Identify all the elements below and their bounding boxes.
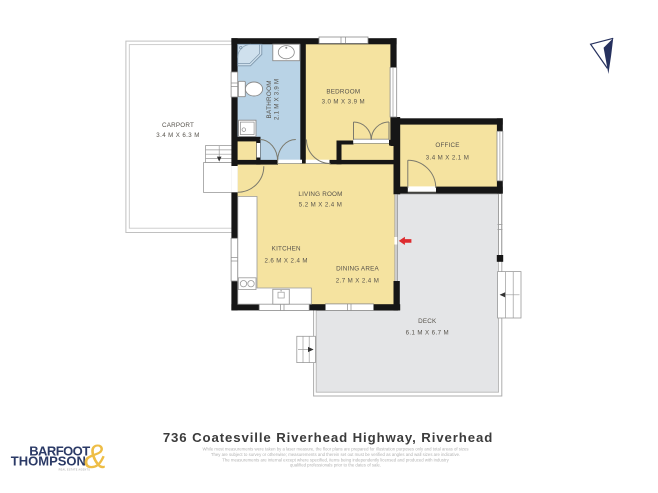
svg-text:5.2 M X 2.4 M: 5.2 M X 2.4 M bbox=[299, 201, 342, 208]
svg-text:LIVING ROOM: LIVING ROOM bbox=[298, 191, 342, 198]
svg-text:They are subject to survey or: They are subject to survey or otherwise;… bbox=[211, 452, 460, 457]
svg-text:736 Coatesville Riverhead High: 736 Coatesville Riverhead Highway, River… bbox=[163, 430, 493, 445]
svg-text:THOMPSON: THOMPSON bbox=[11, 453, 86, 468]
svg-text:DINING AREA: DINING AREA bbox=[336, 265, 379, 272]
svg-text:The measurements are internal: The measurements are internal except whe… bbox=[222, 457, 449, 462]
svg-text:DECK: DECK bbox=[418, 318, 437, 325]
svg-text:2.7 M X 2.4 M: 2.7 M X 2.4 M bbox=[336, 277, 379, 284]
svg-text:CARPORT: CARPORT bbox=[162, 122, 194, 129]
svg-text:3.0 M X 3.9 M: 3.0 M X 3.9 M bbox=[322, 98, 365, 105]
svg-text:KITCHEN: KITCHEN bbox=[272, 246, 301, 253]
svg-text:BEDROOM: BEDROOM bbox=[326, 89, 360, 96]
svg-text:While most measurements were t: While most measurements were taken by a … bbox=[202, 447, 468, 452]
svg-text:6.1 M X 6.7 M: 6.1 M X 6.7 M bbox=[406, 329, 449, 336]
svg-text:OFFICE: OFFICE bbox=[435, 142, 459, 149]
svg-text:3.4 M X 6.3 M: 3.4 M X 6.3 M bbox=[156, 132, 199, 139]
svg-text:BATHROOM: BATHROOM bbox=[266, 80, 273, 118]
svg-text:qualified professionals prior: qualified professionals prior to the dat… bbox=[290, 463, 381, 468]
svg-text:2.1 M X 3.9 M: 2.1 M X 3.9 M bbox=[273, 79, 280, 120]
svg-text:3.4 M X 2.1 M: 3.4 M X 2.1 M bbox=[426, 154, 469, 161]
svg-text:2.6 M X 2.4 M: 2.6 M X 2.4 M bbox=[264, 257, 307, 264]
svg-text:REAL ESTATE AGENTS: REAL ESTATE AGENTS bbox=[59, 468, 91, 471]
